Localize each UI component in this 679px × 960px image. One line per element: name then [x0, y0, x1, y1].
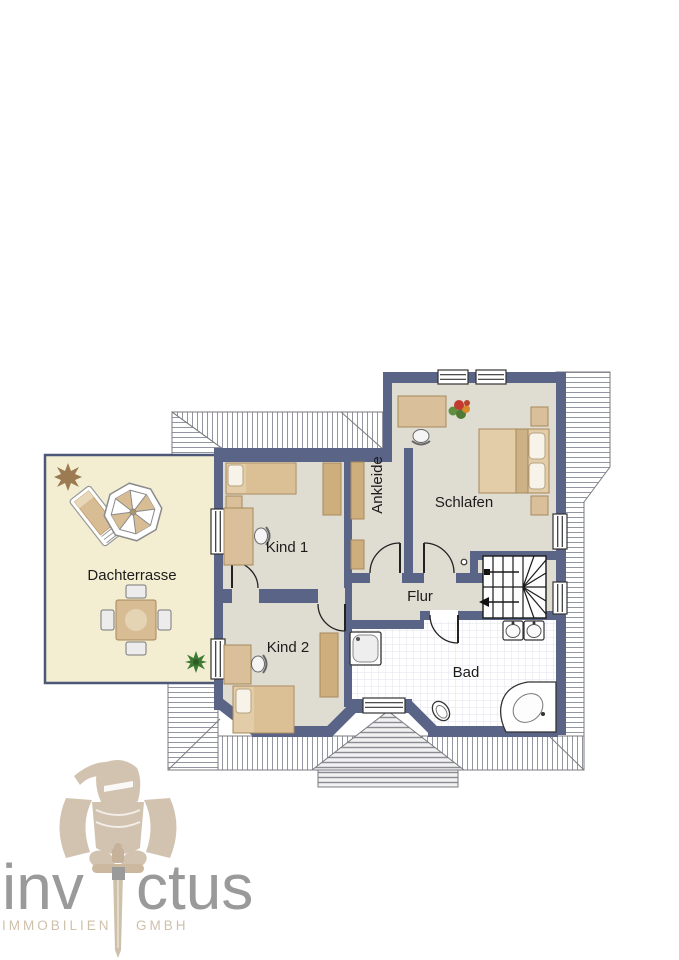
ankleide-furniture — [351, 462, 364, 569]
brand-text-right: ctus — [136, 851, 253, 923]
double-sink-icon — [503, 621, 544, 640]
wardrobe-icon — [323, 463, 341, 515]
wardrobe-icon — [320, 633, 338, 697]
nightstand-icon — [531, 407, 548, 426]
roof-left-lower-band — [168, 683, 218, 770]
desk-icon — [224, 645, 251, 684]
chair-icon — [412, 430, 430, 445]
bed-icon — [233, 686, 294, 733]
desk-icon — [224, 508, 253, 565]
chair-icon — [252, 655, 267, 673]
room-label-kind2: Kind 2 — [267, 639, 310, 656]
wardrobe-icon — [351, 540, 364, 569]
desk-icon — [398, 396, 446, 427]
room-label-dachterrasse: Dachterrasse — [87, 567, 176, 584]
window — [211, 509, 225, 554]
room-label-schlafen: Schlafen — [435, 494, 493, 511]
room-label-kind1: Kind 1 — [266, 539, 309, 556]
window — [553, 514, 567, 549]
floorplan-drawing: Dachterrasse Kind 1 Kind 2 Ankleide Schl… — [0, 0, 679, 960]
logo-i-dot — [112, 867, 125, 880]
brand-text-left: inv — [2, 851, 84, 923]
subtitle-text-left: IMMOBILIEN — [2, 918, 112, 933]
room-label-bad: Bad — [453, 664, 480, 681]
subtitle-text-right: GMBH — [136, 918, 189, 933]
room-label-flur: Flur — [407, 588, 433, 605]
roof-gable-base — [318, 770, 458, 787]
floorplan-page: Dachterrasse Kind 1 Kind 2 Ankleide Schl… — [0, 0, 679, 960]
shower-icon — [350, 632, 381, 665]
door-stop-dot — [461, 559, 467, 565]
wardrobe-icon — [351, 462, 364, 519]
nightstand-icon — [531, 496, 548, 515]
company-logo: inv ctus IMMOBILIEN GMBH — [2, 760, 253, 958]
window — [438, 370, 468, 384]
window — [211, 639, 225, 679]
bed-icon — [226, 463, 296, 494]
stairs-icon — [479, 556, 546, 618]
room-label-ankleide: Ankleide — [369, 456, 386, 514]
window — [553, 582, 567, 614]
window — [363, 698, 405, 713]
window — [476, 370, 506, 384]
